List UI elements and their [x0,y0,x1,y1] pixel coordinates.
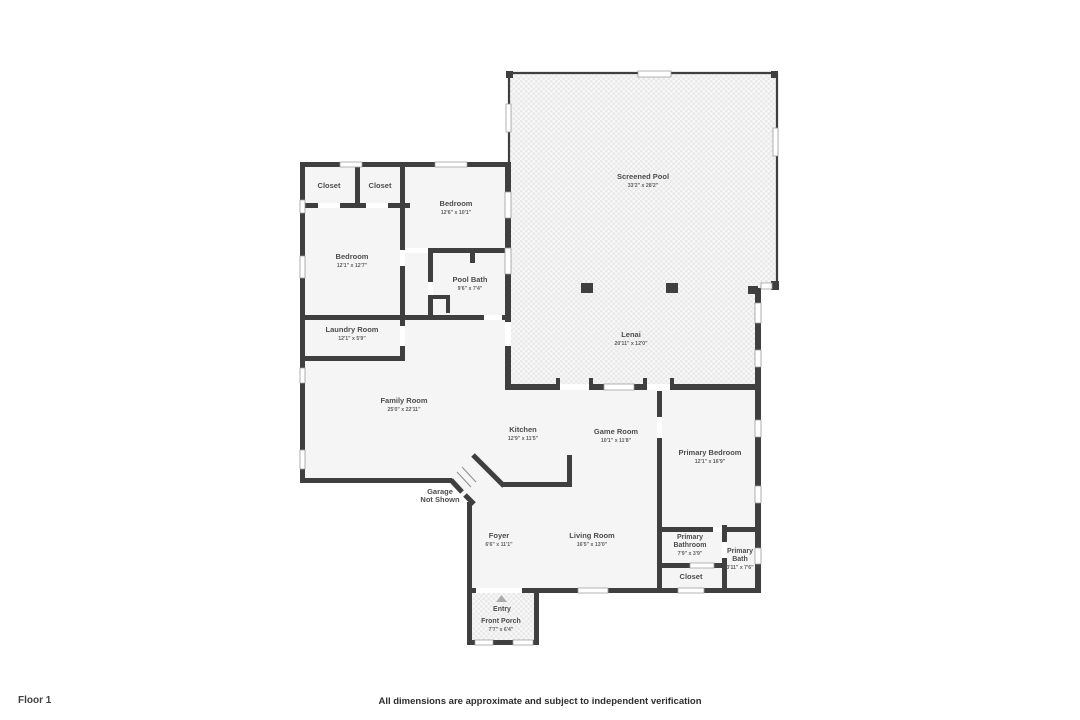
room-label-primary-bathroom-line2: Bathroom [673,542,706,549]
room-dims-pool-bath: 9'6" x 7'4" [458,286,483,292]
room-dims-screened-pool: 33'2" x 28'2" [628,183,659,189]
room-label-entry: Entry [493,606,511,613]
room-label-lenai: Lenai [621,330,641,339]
note-garage-line2: Not Shown [420,495,460,504]
room-dims-family-room: 25'0" x 22'11" [387,407,421,413]
room-label-family-room: Family Room [380,396,427,405]
room-dims-living-room: 16'5" x 13'0" [577,542,608,548]
room-label-closet-a: Closet [318,181,341,190]
room-label-foyer: Foyer [489,531,510,540]
room-label-game-room: Game Room [594,427,639,436]
room-dims-lenai: 20'11" x 12'0" [614,341,648,347]
room-dims-foyer: 6'6" x 11'1" [485,542,513,548]
floor-plan-page: Closet Closet Bedroom 12'6" x 10'1" Bedr… [0,0,1080,720]
room-dims-bedroom-3: 12'1" x 12'7" [337,263,368,269]
room-label-primary-bath-line2: Bath [732,556,748,563]
room-dims-primary-bathroom: 7'9" x 3'9" [678,551,703,557]
room-label-bedroom-3: Bedroom [336,252,369,261]
room-label-primary-bathroom-line1: Primary [677,534,703,541]
room-dims-kitchen: 12'9" x 11'5" [508,436,539,442]
room-label-primary-bath-line1: Primary [727,548,753,555]
room-label-primary-bedroom: Primary Bedroom [679,448,742,457]
screened-pool-lenai-area [509,73,777,384]
room-label-bedroom-2: Bedroom [440,199,473,208]
room-dims-laundry: 12'1" x 5'9" [338,336,366,342]
room-dims-game-room: 10'1" x 11'8" [601,438,632,444]
room-label-laundry: Laundry Room [326,325,379,334]
room-dims-primary-bath: 3'11" x 7'6" [726,565,754,571]
room-label-closet-b: Closet [369,181,392,190]
room-label-pool-bath: Pool Bath [453,275,488,284]
floor-plan-drawing: Closet Closet Bedroom 12'6" x 10'1" Bedr… [0,0,1080,720]
room-label-living-room: Living Room [569,531,615,540]
room-label-screened-pool: Screened Pool [617,172,669,181]
room-dims-front-porch: 7'7" x 6'4" [489,627,514,633]
room-dims-bedroom-2: 12'6" x 10'1" [441,210,472,216]
room-label-kitchen: Kitchen [509,425,537,434]
room-label-closet-c: Closet [680,572,703,581]
dimensions-disclaimer: All dimensions are approximate and subje… [0,696,1080,707]
room-label-front-porch: Front Porch [481,618,521,625]
room-dims-primary-bedroom: 12'1" x 16'9" [695,459,726,465]
